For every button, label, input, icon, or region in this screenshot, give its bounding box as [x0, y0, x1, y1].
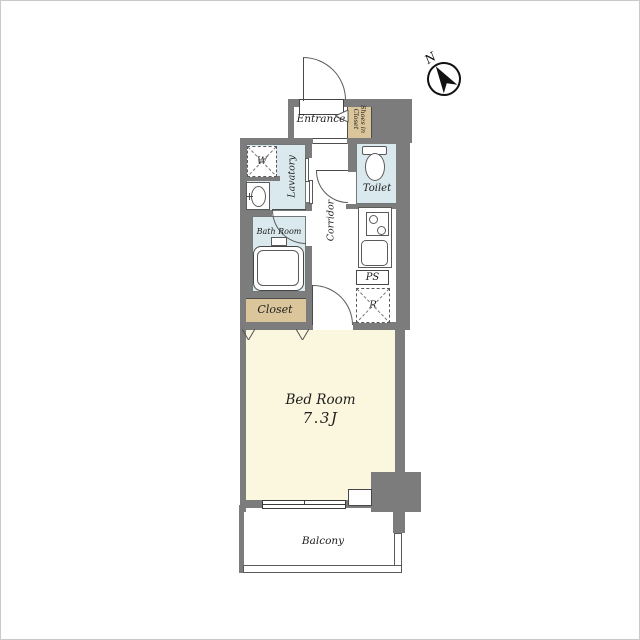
pipe-space-label: PS: [366, 272, 380, 283]
toilet-label: Toilet: [356, 183, 398, 194]
wall-segment: [396, 143, 410, 330]
x-cross-icon: [248, 147, 276, 176]
wall-segment: [240, 292, 312, 298]
entrance-step: [313, 138, 347, 144]
refrigerator-space: R: [356, 288, 390, 323]
bathtub-inner: [257, 250, 299, 286]
balcony-storage-notch: [348, 489, 372, 506]
lavatory-sliding-door: [305, 158, 309, 182]
bath-room-label: Bath Room: [252, 227, 306, 236]
lavatory-sink-bowl: [251, 186, 266, 207]
stove-burner-icon: [377, 226, 386, 235]
closet-door-chevron-icon: [296, 329, 309, 340]
lavatory-label: Lavatory: [287, 147, 298, 207]
bathtub-step: [271, 237, 287, 246]
bedroom-door-arc: [313, 285, 353, 325]
washing-machine-space: W: [247, 146, 277, 177]
toilet-bowl: [365, 153, 385, 181]
bed-room-area-label: 7.3J: [246, 409, 395, 427]
corridor-label: Corridor: [326, 191, 337, 251]
closet-label: Closet: [243, 303, 307, 316]
wall-segment: [353, 322, 410, 330]
faucet-icon: [249, 193, 250, 200]
window-center-tick: [304, 501, 305, 505]
x-cross-icon: [357, 289, 389, 322]
stove-burner-icon: [369, 215, 378, 224]
wall-segment: [395, 330, 405, 473]
kitchen-sink: [361, 240, 388, 266]
wall-segment: [240, 211, 272, 216]
entrance-label: Entrance: [294, 113, 348, 125]
lavatory-sliding-door: [309, 180, 313, 204]
wall-segment: [240, 138, 313, 144]
closet-door-chevron-icon: [242, 329, 255, 340]
entrance-door-arc: [303, 57, 346, 100]
wall-segment: [348, 138, 356, 172]
bed-room-label: Bed Room: [246, 392, 395, 408]
wall-segment: [306, 144, 312, 158]
north-compass: N: [413, 43, 475, 105]
balcony-bottom-rail: [243, 565, 402, 573]
floor-plan-canvas: W PS R N Entrance Shoes in: [0, 0, 640, 640]
shoes-closet-label-line1: Shoes in: [359, 99, 366, 139]
wall-segment: [393, 512, 405, 533]
pipe-space: PS: [356, 270, 389, 285]
balcony-label: Balcony: [244, 535, 402, 547]
balcony-sliding-window: [262, 500, 346, 509]
shoes-closet-label: Shoes in Closet: [352, 99, 366, 139]
wall-segment: [371, 472, 421, 512]
wall-segment: [240, 210, 252, 298]
shoes-closet-label-line2: Closet: [352, 99, 359, 139]
